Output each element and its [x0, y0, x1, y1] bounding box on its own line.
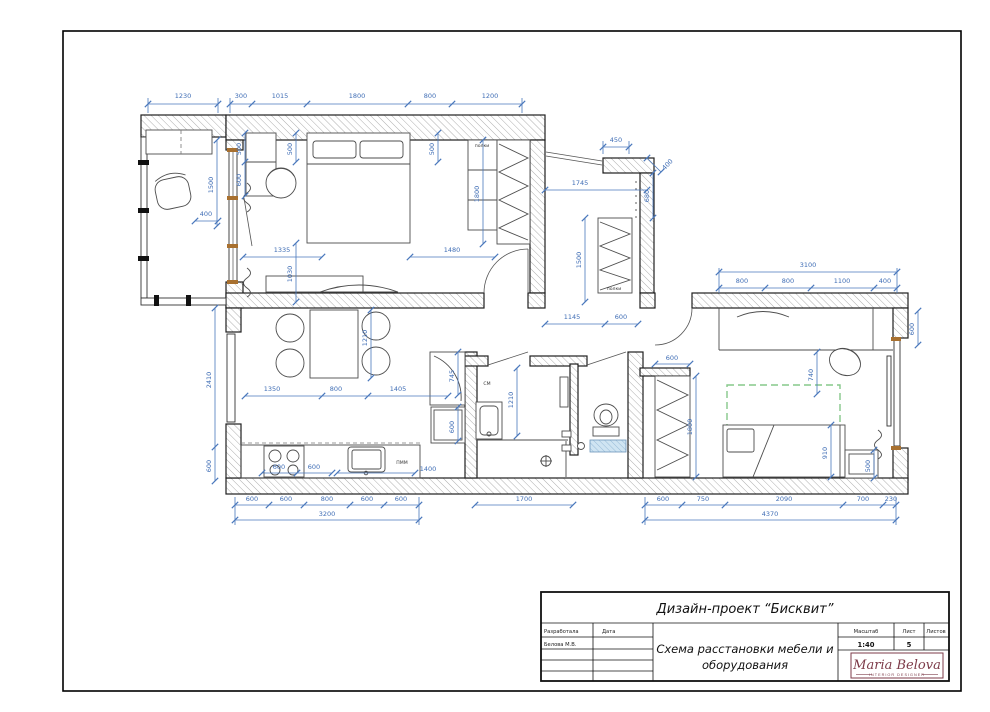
dim-label: 800 — [330, 385, 342, 393]
dim-label: 800 — [782, 277, 794, 285]
dim-label: 800 — [321, 495, 333, 503]
dim-label: 450 — [610, 136, 622, 144]
dim-label: 1335 — [274, 246, 291, 254]
dim-label: 600 — [361, 495, 373, 503]
dim-label: 600 — [908, 323, 916, 335]
dim-label: 400 — [879, 277, 891, 285]
dim-label: 1210 — [361, 330, 369, 347]
shelves-label: полки — [607, 287, 622, 292]
dim-label: 600 — [657, 495, 669, 503]
dim-label: 600 — [273, 463, 285, 471]
chair — [276, 349, 304, 377]
sheets-label: Листов — [926, 629, 945, 635]
dim-label: 1405 — [390, 385, 407, 393]
dim-label: 600 — [395, 495, 407, 503]
dim-label: 2410 — [205, 372, 213, 389]
chair — [362, 347, 390, 375]
shelving-niche — [468, 140, 497, 230]
sheet-label: Лист — [902, 629, 915, 635]
play-rug — [727, 385, 840, 427]
dim-label: 500 — [864, 460, 872, 472]
dim-label: 600 — [308, 463, 320, 471]
shelves-label: полки — [475, 144, 490, 149]
washing-machine-label: СМ — [483, 381, 490, 387]
dim-label: 680 — [643, 190, 651, 202]
dim-label: 1500 — [207, 177, 215, 194]
scale-value: 1:40 — [858, 641, 875, 649]
dim-label: 800 — [736, 277, 748, 285]
desk-chair — [825, 343, 865, 380]
dim-label: 1800 — [349, 92, 366, 100]
dim-label: 1800 — [686, 419, 694, 436]
dim-label: 3200 — [319, 510, 336, 518]
dim-label: 300 — [235, 92, 247, 100]
kitchen-sink — [348, 447, 385, 472]
dim-label: 1700 — [516, 495, 533, 503]
dim-label: 1745 — [572, 179, 589, 187]
dim-label: 500 — [428, 143, 436, 155]
dim-label: 1350 — [264, 385, 281, 393]
dim-label: 1145 — [564, 313, 581, 321]
hall-wardrobe — [598, 218, 632, 293]
tv-console — [266, 276, 363, 292]
title-block: Дизайн-проект “Бисквит” Разработала Дата… — [541, 592, 949, 681]
dim-label: 1480 — [444, 246, 461, 254]
dim-label: 1200 — [482, 92, 499, 100]
dim-label: 600 — [666, 354, 678, 362]
dim-label: 700 — [857, 495, 869, 503]
office-chair — [152, 170, 192, 211]
logo-name: Maria Belova — [852, 658, 941, 673]
dim-label: 400 — [200, 210, 212, 218]
dining-table — [310, 310, 358, 378]
floor-plan-svg: 1230 300 1015 1800 800 1200 1500 400 500… — [0, 0, 990, 712]
chair — [276, 314, 304, 342]
dim-label: 1800 — [473, 186, 481, 203]
dim-label: 1230 — [175, 92, 192, 100]
dim-label: 600 — [615, 313, 627, 321]
bedroom-wardrobe — [497, 140, 530, 244]
dim-label: 600 — [246, 495, 258, 503]
developer-label: Разработала — [544, 629, 579, 635]
toilet — [594, 404, 618, 426]
dishwasher-label: ПММ — [396, 460, 407, 466]
dim-label: 1210 — [507, 392, 515, 409]
dim-label: 750 — [697, 495, 709, 503]
drawing-title-line2: оборудования — [702, 658, 788, 672]
designer-logo: Maria Belova INTERIOR DESIGNER — [851, 653, 943, 678]
drawing-title-line1: Схема расстановки мебели и — [656, 642, 834, 656]
dim-label: 600 — [448, 421, 456, 433]
dim-label: 1400 — [420, 465, 437, 473]
dim-label: 600 — [280, 495, 292, 503]
dim-label: 910 — [821, 447, 829, 459]
balcony-desk — [146, 130, 212, 154]
dim-label: 600 — [205, 460, 213, 472]
dim-label: 740 — [807, 369, 815, 381]
dim-label: 400 — [660, 157, 674, 172]
dim-label: 230 — [885, 495, 897, 503]
dim-label: 2090 — [776, 495, 793, 503]
dim-label: 1030 — [286, 266, 294, 283]
dim-label: 600 — [235, 174, 243, 186]
scale-label: Масштаб — [854, 629, 879, 635]
drawing-sheet: 1230 300 1015 1800 800 1200 1500 400 500… — [0, 0, 990, 712]
dim-label: 1100 — [834, 277, 851, 285]
logo-subtitle: INTERIOR DESIGNER — [869, 673, 925, 677]
dim-label: 1015 — [272, 92, 289, 100]
dim-label: 745 — [448, 370, 456, 382]
dim-label: 800 — [424, 92, 436, 100]
monitor — [737, 312, 789, 318]
project-title: Дизайн-проект “Бисквит” — [656, 602, 834, 617]
dim-label: 4370 — [762, 510, 779, 518]
sheet-value: 5 — [907, 641, 912, 649]
dim-label: 500 — [286, 143, 294, 155]
developer-name: Белова М.В. — [544, 642, 577, 648]
dim-label: 500 — [235, 143, 243, 155]
date-label: Дата — [602, 629, 615, 635]
dim-label: 1500 — [575, 252, 583, 269]
wc-shelf — [590, 440, 626, 452]
dim-label: 3100 — [800, 261, 817, 269]
bath-shelf — [560, 377, 568, 407]
